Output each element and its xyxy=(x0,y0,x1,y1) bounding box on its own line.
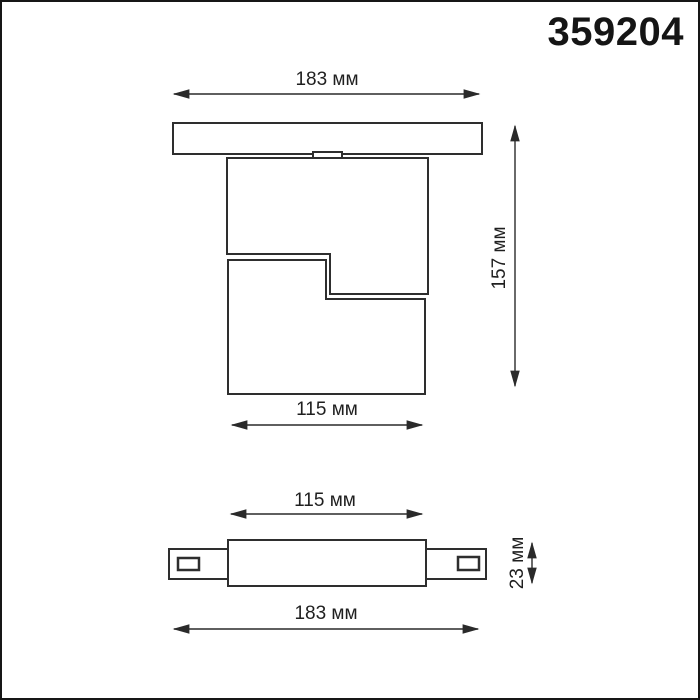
front-view xyxy=(173,123,482,394)
dimension-label-front-plate-width: 183 мм xyxy=(295,69,358,91)
dimension-label-adapter-inner-width: 115 мм xyxy=(294,490,356,512)
adapter-view xyxy=(169,540,486,586)
dimension-label-front-body-width: 115 мм xyxy=(296,399,358,421)
adapter-body xyxy=(228,540,426,586)
dimension-label-adapter-height: 23 мм xyxy=(507,537,529,590)
dimension-label-adapter-total-width: 183 мм xyxy=(294,603,357,625)
adapter-left-slot xyxy=(178,558,199,570)
front-view-mounting-plate xyxy=(173,123,482,154)
technical-drawing-page: 359204 xyxy=(0,0,700,700)
dimension-label-front-height: 157 мм xyxy=(489,226,511,289)
adapter-right-slot xyxy=(458,557,479,570)
technical-drawing xyxy=(2,2,700,700)
